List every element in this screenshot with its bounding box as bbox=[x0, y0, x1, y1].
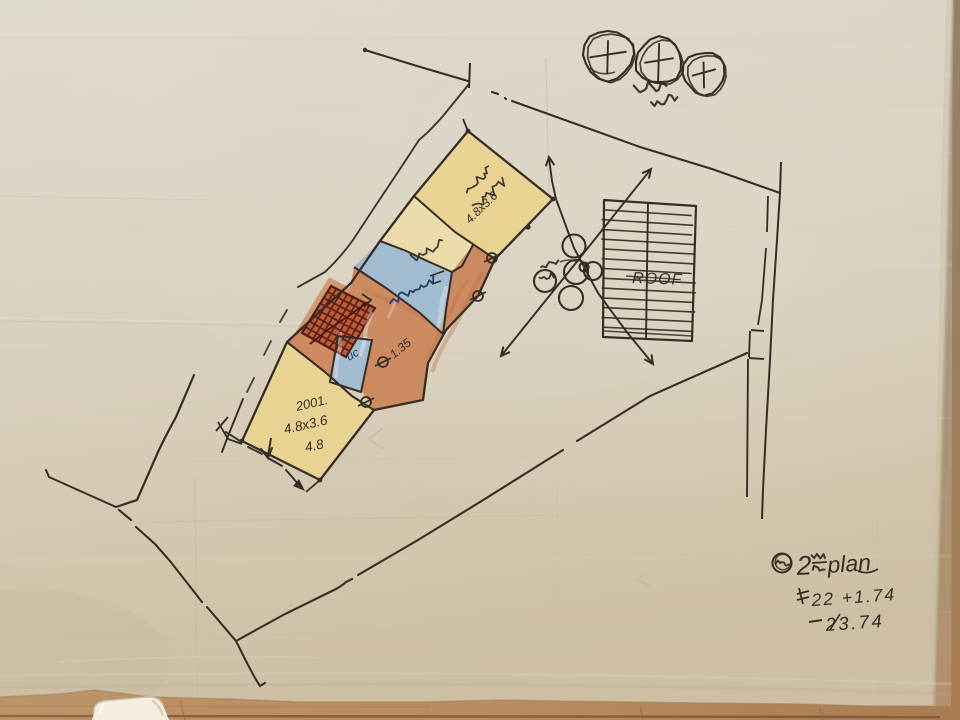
svg-text:plan: plan bbox=[826, 549, 872, 578]
svg-text:23.74: 23.74 bbox=[824, 610, 885, 635]
svg-text:ROOF: ROOF bbox=[632, 270, 683, 289]
svg-text:2: 2 bbox=[795, 550, 813, 581]
